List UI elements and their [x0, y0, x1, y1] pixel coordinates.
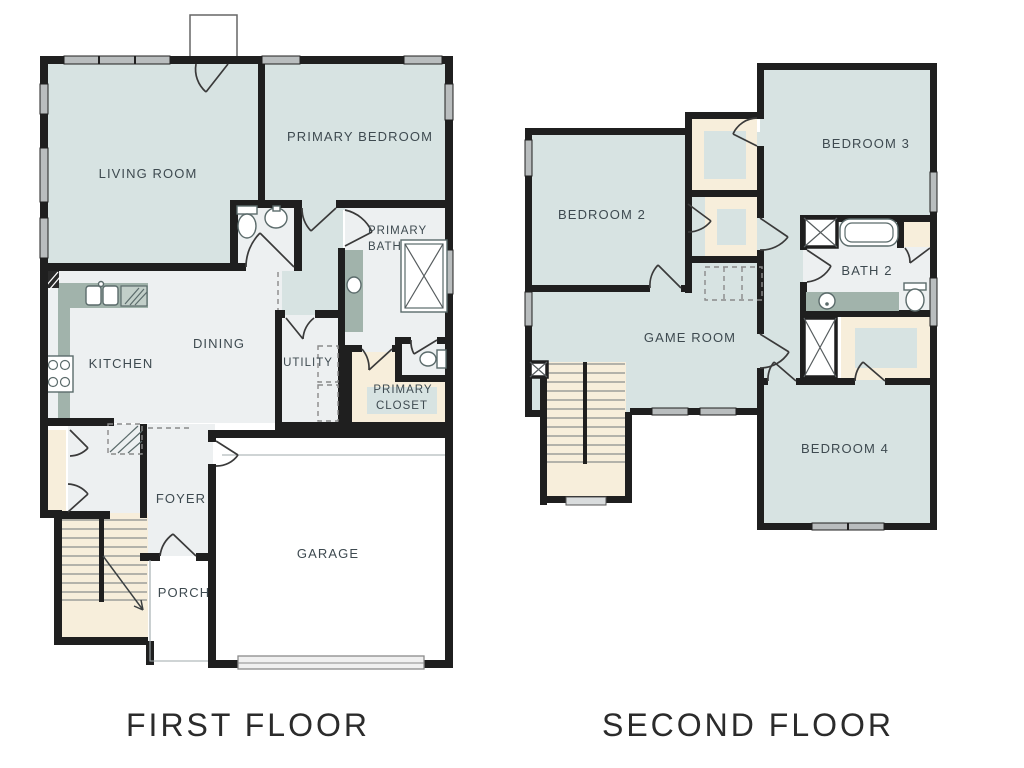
utility-label: UTILITY — [283, 357, 333, 369]
bath2-toilet-fixture — [904, 283, 926, 311]
bath2-label: BATH 2 — [841, 263, 892, 278]
living-room-label: LIVING ROOM — [99, 166, 198, 181]
shower-fixture — [401, 240, 447, 312]
second-floor-title: SECOND FLOOR — [602, 707, 894, 743]
stair-closet-x — [530, 362, 547, 377]
kitchen-label: KITCHEN — [89, 356, 154, 371]
linen-cubby — [903, 221, 930, 247]
primary-bath-label-1: PRIMARY — [368, 225, 427, 237]
foyer-label: FOYER — [156, 491, 206, 506]
stair-stringer-2 — [583, 362, 587, 464]
primary-bath-label-2: BATH — [368, 241, 402, 253]
room-porch — [150, 556, 210, 664]
dining-label: DINING — [193, 336, 245, 351]
floor-plans-canvas: LIVING ROOM PRIMARY BEDROOM PRIMARY BATH… — [0, 0, 1024, 768]
garage-door — [238, 656, 424, 669]
room-fills — [44, 15, 450, 664]
bedroom4-label: BEDROOM 4 — [801, 441, 889, 456]
primary-closet-label-2: CLOSET — [376, 400, 428, 412]
garage-label: GARAGE — [297, 546, 359, 561]
wc-toilet-fixture — [420, 350, 446, 368]
stair-landing-door — [566, 497, 606, 505]
porch-label: PORCH — [158, 585, 210, 600]
bedroom2-label: BEDROOM 2 — [558, 207, 646, 222]
coat-closet — [46, 430, 66, 514]
primary-closet-label-1: PRIMARY — [373, 384, 432, 396]
bedroom3-label: BEDROOM 3 — [822, 136, 910, 151]
first-floor-title: FIRST FLOOR — [126, 707, 370, 743]
second-floor-plan: BEDROOM 2 BEDROOM 3 BATH 2 GAME ROOM BED… — [525, 63, 937, 530]
room-utility — [282, 315, 340, 425]
tub-fixture — [840, 219, 898, 246]
primary-bedroom-label: PRIMARY BEDROOM — [287, 129, 433, 144]
primary-sink-fixture — [347, 277, 361, 293]
half-bath-toilet-fixture — [237, 206, 257, 238]
game-room-label: GAME ROOM — [644, 330, 736, 345]
bath2-sink-fixture — [819, 293, 835, 309]
bath2-linen-x — [804, 218, 837, 247]
bedroom4-closet-x — [804, 318, 836, 377]
entry-stoop — [190, 15, 237, 62]
first-floor-plan: LIVING ROOM PRIMARY BEDROOM PRIMARY BATH… — [40, 15, 453, 669]
upstairs-hall — [757, 196, 804, 408]
stove-fixture — [45, 356, 73, 392]
floor-plan-image: LIVING ROOM PRIMARY BEDROOM PRIMARY BATH… — [0, 0, 1024, 768]
stair-stringer — [99, 518, 104, 602]
kitchen-counter-left — [58, 283, 70, 423]
dish-rack-fixture — [121, 286, 147, 306]
